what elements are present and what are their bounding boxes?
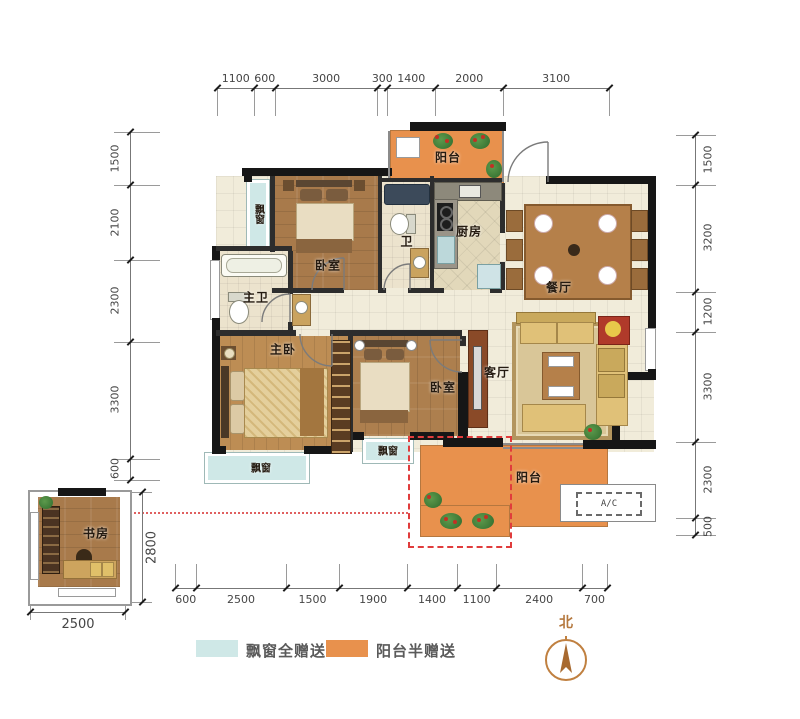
label-bay-second: 飘窗 — [378, 443, 398, 458]
ac-label: A/C — [601, 499, 617, 509]
dim-top-ext — [377, 88, 378, 116]
iwall — [270, 176, 275, 252]
dim-left-ext — [114, 342, 160, 343]
pillow — [386, 349, 404, 360]
dim-bottom-label: 2400 — [509, 593, 569, 606]
study-window-bottom — [58, 588, 116, 597]
dim-top-label: 600 — [235, 72, 295, 85]
sofa-cushion — [598, 348, 625, 372]
compass: 北 — [536, 612, 596, 687]
balcony-top-plant-1 — [433, 133, 453, 149]
label-balcony-bottom: 阳台 — [516, 469, 542, 486]
tv — [473, 346, 482, 410]
plate — [598, 266, 617, 285]
study-chair — [102, 562, 114, 577]
bathtub-dark — [384, 184, 430, 205]
iwall — [216, 246, 292, 251]
bed2-body — [360, 362, 410, 412]
wardrobe — [331, 340, 351, 454]
tray — [548, 356, 574, 367]
dim-right-label: 2300 — [702, 460, 715, 500]
dim-bottom-ext — [286, 564, 287, 588]
study-chair — [90, 562, 102, 577]
label-balcony-top: 阳台 — [435, 149, 461, 166]
study-width-label: 2500 — [48, 617, 108, 632]
dim-top-ext — [387, 88, 388, 116]
wall — [244, 168, 252, 182]
legend-swatch-balcony — [326, 640, 368, 657]
label-dining: 餐厅 — [546, 279, 572, 296]
dim-left-ext — [114, 185, 160, 186]
study-height-dimline — [142, 492, 143, 602]
bath-vanity-bowl — [413, 256, 426, 269]
wall-thin — [502, 131, 504, 182]
bathtub-inner — [226, 258, 282, 273]
pillow — [230, 404, 245, 434]
washer-box — [396, 137, 420, 158]
iwall — [378, 176, 382, 290]
legend-label-balcony: 阳台半赠送 — [376, 640, 456, 661]
dim-top-ext — [609, 88, 610, 116]
label-bedroom-top: 卧室 — [315, 257, 341, 274]
chair — [631, 239, 648, 261]
nightstand — [354, 180, 365, 191]
tray — [548, 386, 574, 397]
bookshelf — [42, 506, 60, 574]
bed-blanket — [296, 239, 352, 253]
label-master-bedroom: 主卧 — [270, 341, 296, 358]
study-plan: 书房 2500 2800 — [0, 0, 200, 719]
center-dish — [568, 244, 580, 256]
wall — [410, 122, 506, 131]
wall — [546, 176, 656, 184]
kitchen-sink — [459, 185, 481, 198]
chair — [631, 268, 648, 290]
floorplan-image: A/C 卧室 卫 厨房 餐厅 阳台 主卫 客厅 主卧 卧室 飘窗 飘窗 飘窗 阳… — [0, 0, 800, 719]
plate — [534, 214, 553, 233]
wall-art-circle — [605, 321, 621, 337]
label-bath: 卫 — [400, 233, 413, 250]
dim-top-ext — [254, 88, 255, 116]
compass-dial — [536, 631, 596, 687]
wall — [352, 432, 364, 440]
wall — [583, 440, 656, 449]
label-master-bath: 主卫 — [243, 289, 269, 306]
lamp — [406, 340, 417, 351]
hall-basin-bowl — [295, 301, 308, 314]
kitchen-cabinet — [437, 236, 455, 264]
gift-balcony-outline — [408, 436, 512, 548]
iwall — [460, 336, 466, 346]
dim-left-ext — [114, 132, 160, 133]
pillow — [364, 349, 382, 360]
chair — [506, 268, 523, 290]
label-kitchen: 厨房 — [456, 223, 482, 240]
chair — [506, 239, 523, 261]
sofa-cushion — [598, 374, 625, 398]
lamp — [354, 340, 365, 351]
study-width-dimline — [30, 612, 126, 613]
ac-unit: A/C — [576, 492, 642, 516]
burner — [440, 218, 453, 231]
dim-top-label: 3100 — [526, 72, 586, 85]
bed2-headboard — [360, 340, 408, 347]
dim-right-label: 3300 — [702, 366, 715, 406]
dim-right-line — [695, 135, 696, 535]
iwall — [272, 288, 344, 293]
sofa-bottom — [522, 404, 586, 432]
bed-body — [296, 203, 354, 241]
dim-left-label: 2300 — [109, 280, 122, 320]
wall — [648, 176, 656, 328]
sofa-seat — [557, 322, 594, 344]
balcony-top-plant-2 — [470, 133, 490, 149]
iwall — [408, 288, 434, 293]
dim-bottom-label: 2500 — [211, 593, 271, 606]
wall — [212, 446, 226, 454]
pillow — [230, 371, 245, 401]
label-bay-top: 飘窗 — [251, 204, 266, 224]
wall — [242, 168, 384, 176]
dim-right-label: 3200 — [702, 218, 715, 258]
dim-top-ext — [275, 88, 276, 116]
dim-bottom-label: 1900 — [343, 593, 403, 606]
dim-bottom-label: 1500 — [282, 593, 342, 606]
dim-left-label: 600 — [109, 449, 122, 489]
iwall — [378, 288, 386, 293]
pillow — [300, 189, 322, 201]
dim-top-ext — [435, 88, 436, 116]
iwall — [434, 288, 444, 293]
lamp — [224, 348, 235, 359]
nightstand — [283, 180, 294, 191]
bed2-blanket — [360, 410, 408, 423]
dim-right-label: 1200 — [702, 291, 715, 331]
bed — [296, 180, 352, 187]
master-bath-window — [210, 260, 220, 320]
label-study: 书房 — [83, 525, 109, 542]
legend-swatch-bay — [196, 640, 238, 657]
dim-top-label: 1400 — [381, 72, 441, 85]
dim-top-ext — [503, 88, 504, 116]
chair — [631, 210, 648, 232]
dim-top-label: 3000 — [296, 72, 356, 85]
chair — [506, 210, 523, 232]
wall — [212, 336, 220, 452]
wall — [58, 488, 106, 496]
study-window-left — [30, 512, 39, 580]
iwall — [216, 330, 296, 336]
dining-window — [645, 328, 656, 371]
dim-bottom-label: 1100 — [447, 593, 507, 606]
fridge — [477, 264, 501, 289]
wall — [458, 372, 468, 442]
master-headboard — [221, 366, 229, 438]
dim-right-label: 1500 — [702, 140, 715, 180]
dim-left-label: 2100 — [109, 202, 122, 242]
plate — [598, 214, 617, 233]
dim-bottom-line — [175, 588, 607, 589]
label-living: 客厅 — [484, 364, 510, 381]
master-bed-throw — [300, 368, 324, 436]
legend-label-bay: 飘窗全赠送 — [246, 640, 326, 661]
balcony-slider — [503, 443, 583, 445]
dim-top-label: 2000 — [439, 72, 499, 85]
balcony-top-plant-3 — [486, 160, 502, 178]
compass-north-label: 北 — [536, 612, 596, 632]
wall-thin — [388, 131, 390, 182]
dim-left-label: 3300 — [109, 380, 122, 420]
label-bedroom-second: 卧室 — [430, 379, 456, 396]
sofa-seat — [520, 322, 557, 344]
legend: 飘窗全赠送 阳台半赠送 — [190, 636, 510, 662]
living-plant — [584, 424, 602, 440]
pillow — [326, 189, 348, 201]
dim-bottom-label: 600 — [156, 593, 216, 606]
dim-left-ext — [114, 260, 160, 261]
dim-bottom-label: 700 — [565, 593, 625, 606]
study-plant — [39, 496, 53, 509]
dim-right-label: 500 — [702, 506, 715, 546]
label-bay-master: 飘窗 — [251, 460, 271, 475]
study-height-label: 2800 — [145, 528, 160, 568]
dim-left-label: 1500 — [109, 138, 122, 178]
dim-top-ext — [217, 88, 218, 116]
balcony-slider — [503, 447, 583, 449]
